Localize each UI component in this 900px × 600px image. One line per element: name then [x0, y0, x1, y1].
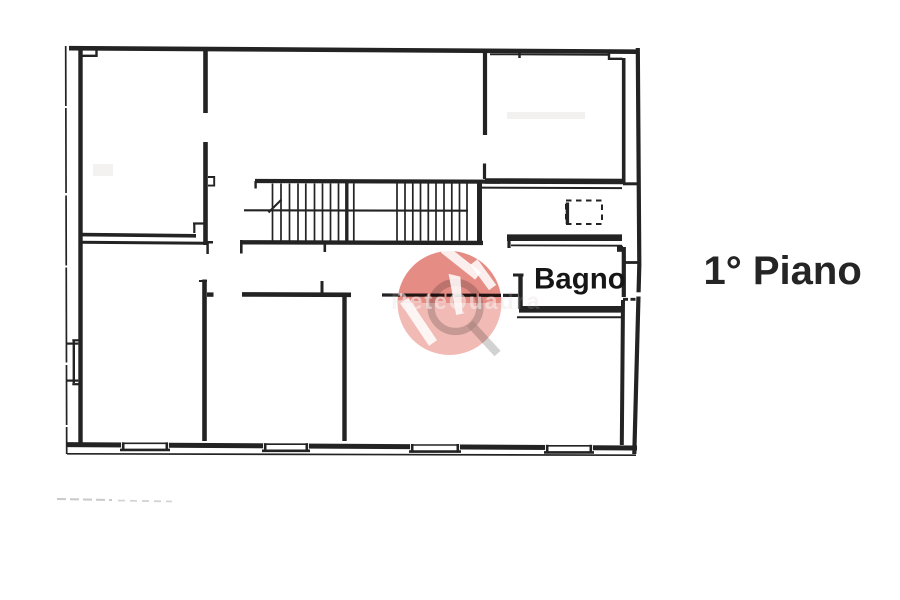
- svg-text:Bagno: Bagno: [534, 263, 626, 296]
- svg-text:1° Piano: 1° Piano: [704, 249, 862, 293]
